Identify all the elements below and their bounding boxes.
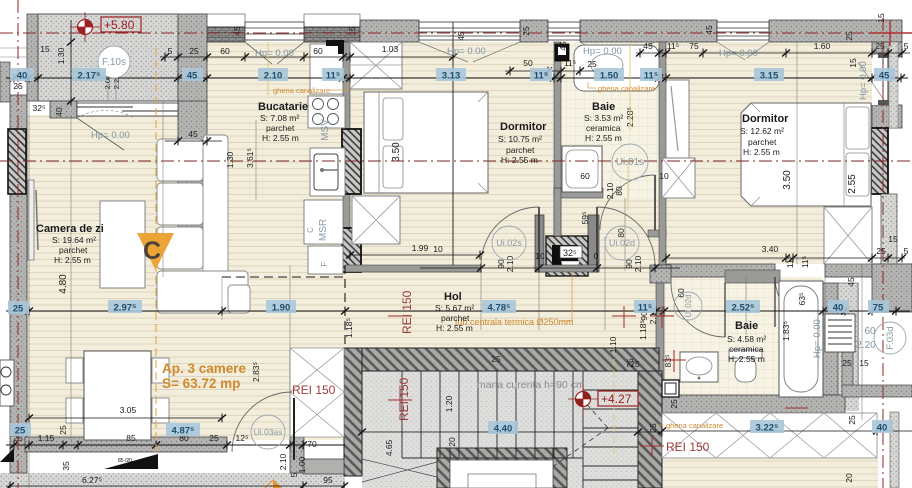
svg-text:2.52⁵: 2.52⁵: [732, 303, 755, 314]
svg-text:11⁵: 11⁵: [644, 71, 659, 82]
svg-text:32⁵: 32⁵: [33, 103, 46, 113]
svg-text:1.00: 1.00: [297, 456, 307, 473]
svg-text:45: 45: [643, 41, 653, 51]
svg-text:Baie: Baie: [735, 320, 758, 332]
svg-text:10: 10: [433, 244, 443, 254]
svg-text:1.83⁵: 1.83⁵: [781, 321, 791, 341]
svg-text:2.83⁵: 2.83⁵: [251, 362, 261, 382]
svg-text:S= 63.72 mp: S= 63.72 mp: [162, 376, 240, 391]
svg-text:25: 25: [13, 304, 24, 315]
svg-text:H: 2.55 m: H: 2.55 m: [743, 147, 780, 157]
svg-text:45: 45: [456, 31, 466, 41]
svg-text:1.18⁵: 1.18⁵: [638, 320, 648, 340]
svg-text:3.13: 3.13: [442, 71, 461, 82]
svg-text:3.61⁵: 3.61⁵: [245, 148, 255, 168]
svg-text:1.20: 1.20: [444, 395, 454, 412]
svg-text:11⁵: 11⁵: [326, 71, 341, 82]
svg-text:Ui.02d: Ui.02d: [684, 294, 693, 317]
svg-text:20: 20: [844, 473, 854, 483]
svg-text:Baie: Baie: [592, 101, 615, 113]
svg-text:5: 5: [904, 41, 909, 51]
svg-text:ceramica: ceramica: [586, 123, 621, 133]
svg-text:H: 2.55 m: H: 2.55 m: [262, 133, 299, 143]
svg-text:70: 70: [307, 439, 317, 449]
svg-text:75: 75: [689, 41, 699, 51]
svg-text:40: 40: [833, 303, 844, 314]
svg-text:15: 15: [347, 26, 357, 36]
svg-text:2.10: 2.10: [278, 453, 288, 470]
svg-text:25: 25: [15, 426, 26, 437]
svg-text:H: 2.55 m: H: 2.55 m: [501, 155, 538, 165]
svg-text:85 /20: 85 /20: [118, 458, 132, 464]
svg-text:2.10: 2.10: [633, 255, 643, 272]
svg-text:25: 25: [209, 433, 219, 443]
svg-text:45: 45: [187, 71, 198, 82]
svg-text:2.10: 2.10: [264, 71, 283, 82]
svg-text:MSR: MSR: [318, 219, 329, 241]
svg-text:1.50: 1.50: [600, 71, 619, 82]
svg-text:parchet: parchet: [441, 313, 470, 323]
svg-text:11⁵: 11⁵: [534, 71, 549, 82]
svg-text:75: 75: [873, 303, 884, 314]
svg-text:12⁵: 12⁵: [236, 433, 249, 443]
svg-text:+4.27: +4.27: [601, 392, 632, 406]
svg-text:32⁵: 32⁵: [563, 248, 577, 258]
svg-text:6.27⁵: 6.27⁵: [82, 475, 102, 485]
svg-text:mana curenta h=90 cm: mana curenta h=90 cm: [477, 379, 585, 391]
svg-text:3.15: 3.15: [760, 71, 779, 82]
svg-text:83⁵: 83⁵: [663, 355, 673, 368]
svg-text:4.78⁵: 4.78⁵: [488, 303, 511, 314]
svg-text:+5.80: +5.80: [104, 18, 135, 32]
svg-text:Hp= 0.00: Hp= 0.00: [583, 46, 622, 57]
svg-text:S: 4.58 m²: S: 4.58 m²: [727, 334, 766, 344]
svg-text:Hp= 0.00: Hp= 0.00: [91, 130, 130, 141]
svg-text:11⁵: 11⁵: [667, 41, 679, 51]
svg-text:15: 15: [876, 13, 886, 23]
svg-text:ceramica: ceramica: [729, 344, 764, 354]
svg-text:15: 15: [848, 58, 858, 68]
svg-text:REI 150: REI 150: [666, 440, 710, 454]
svg-text:3.05: 3.05: [120, 405, 137, 415]
svg-text:1.90: 1.90: [272, 303, 291, 314]
svg-text:45: 45: [846, 277, 856, 287]
svg-text:1.03: 1.03: [382, 44, 399, 54]
svg-text:S: 12.62 m²: S: 12.62 m²: [740, 126, 784, 136]
svg-text:Hp= 0.00: Hp= 0.00: [447, 46, 486, 57]
svg-text:F.10s: F.10s: [102, 57, 126, 68]
svg-text:1.60: 1.60: [814, 41, 831, 51]
svg-text:4.65: 4.65: [384, 439, 394, 456]
svg-text:Ui.03as: Ui.03as: [254, 427, 283, 437]
svg-text:Camera de zi: Camera de zi: [36, 223, 104, 235]
svg-text:Hp= 0.00: Hp= 0.00: [719, 48, 758, 59]
svg-text:F.03d: F.03d: [885, 326, 896, 349]
svg-text:25: 25: [847, 415, 857, 425]
svg-text:60: 60: [220, 46, 230, 56]
svg-text:25: 25: [648, 423, 658, 433]
svg-text:1.18⁵: 1.18⁵: [344, 318, 354, 338]
svg-text:45: 45: [558, 41, 568, 51]
svg-text:S: 5.67 m²: S: 5.67 m²: [435, 303, 474, 313]
svg-text:11⁵: 11⁵: [785, 256, 795, 268]
svg-text:3.40: 3.40: [762, 244, 779, 254]
svg-text:REI 150: REI 150: [397, 377, 411, 421]
svg-text:C: C: [306, 227, 315, 233]
svg-text:40: 40: [54, 107, 64, 117]
svg-text:parchet: parchet: [59, 245, 88, 255]
svg-text:1.30: 1.30: [225, 151, 235, 168]
svg-text:Bucatarie: Bucatarie: [258, 101, 308, 113]
svg-text:63⁵: 63⁵: [797, 293, 807, 306]
svg-text:25: 25: [844, 31, 854, 41]
svg-text:80: 80: [616, 228, 626, 238]
svg-text:H: 2.55 m: H: 2.55 m: [728, 354, 765, 364]
svg-text:10: 10: [535, 251, 545, 261]
svg-text:25: 25: [189, 46, 199, 56]
svg-text:Ui.02d: Ui.02d: [609, 238, 635, 248]
svg-text:REI 150: REI 150: [400, 290, 414, 334]
svg-text:F: F: [320, 261, 329, 266]
svg-text:1.10: 1.10: [608, 336, 618, 353]
svg-text:MSV: MSV: [320, 119, 331, 141]
svg-text:11⁵: 11⁵: [638, 303, 653, 314]
svg-text:11⁵: 11⁵: [564, 58, 576, 68]
svg-text:H: 2.55 m: H: 2.55 m: [54, 255, 91, 265]
svg-text:Hp= 0.00: Hp= 0.00: [812, 319, 823, 358]
svg-text:Ap. 3 camere: Ap. 3 camere: [162, 361, 247, 376]
svg-text:11⁵: 11⁵: [800, 256, 810, 268]
svg-text:25: 25: [521, 26, 531, 36]
svg-text:1.30: 1.30: [56, 47, 66, 64]
svg-text:60: 60: [580, 171, 590, 181]
svg-text:H: 2.55 m: H: 2.55 m: [585, 133, 622, 143]
svg-text:H: 2.55 m: H: 2.55 m: [436, 323, 473, 333]
svg-text:35: 35: [61, 461, 71, 471]
svg-text:parchet: parchet: [266, 123, 295, 133]
svg-text:15: 15: [859, 358, 869, 368]
svg-text:20: 20: [447, 437, 457, 447]
svg-text:2.17⁵: 2.17⁵: [78, 71, 101, 82]
svg-text:0: 0: [594, 251, 599, 261]
svg-text:S: 10.75 m²: S: 10.75 m²: [498, 134, 542, 144]
svg-text:60: 60: [313, 46, 323, 56]
svg-text:5: 5: [168, 46, 173, 56]
svg-text:Dormitor: Dormitor: [742, 113, 789, 125]
svg-text:Hp= 0.00: Hp= 0.00: [255, 48, 294, 59]
svg-text:5: 5: [904, 246, 909, 256]
svg-text:4.80: 4.80: [58, 274, 69, 294]
svg-text:25: 25: [875, 41, 885, 51]
svg-text:ghena canalizare: ghena canalizare: [666, 421, 723, 430]
svg-text:15: 15: [888, 234, 898, 244]
svg-text:25: 25: [630, 359, 640, 369]
svg-text:45: 45: [188, 129, 198, 139]
svg-text:C: C: [143, 237, 161, 265]
svg-text:10: 10: [659, 171, 669, 181]
svg-text:parchet: parchet: [748, 137, 777, 147]
svg-text:ghena canalizare: ghena canalizare: [598, 84, 655, 93]
svg-text:REI 150: REI 150: [292, 383, 336, 397]
svg-text:45: 45: [879, 71, 890, 82]
svg-text:S: 7.08 m²: S: 7.08 m²: [260, 113, 299, 123]
svg-text:1.99: 1.99: [412, 243, 429, 253]
svg-text:25: 25: [491, 354, 501, 364]
svg-text:40: 40: [877, 423, 888, 434]
svg-text:85: 85: [126, 433, 136, 443]
svg-text:2.97⁵: 2.97⁵: [114, 303, 137, 314]
svg-text:parchet: parchet: [506, 145, 535, 155]
svg-text:25: 25: [842, 358, 852, 368]
svg-text:2.55: 2.55: [847, 174, 858, 194]
svg-text:25: 25: [587, 59, 597, 69]
svg-text:3.50: 3.50: [391, 142, 402, 162]
svg-text:59⁵: 59⁵: [580, 212, 590, 225]
svg-text:Ui.02s: Ui.02s: [496, 238, 522, 248]
svg-text:40: 40: [17, 71, 28, 82]
svg-text:15: 15: [40, 44, 50, 54]
svg-text:1.15: 1.15: [38, 433, 55, 443]
svg-text:95: 95: [323, 475, 333, 485]
svg-text:2.20: 2.20: [856, 340, 876, 351]
svg-text:Ui.01s: Ui.01s: [616, 157, 644, 168]
svg-text:S: 19.64 m²: S: 19.64 m²: [52, 235, 96, 245]
svg-text:25: 25: [669, 399, 679, 409]
svg-text:50: 50: [523, 58, 533, 68]
svg-text:4.40: 4.40: [494, 424, 513, 435]
svg-text:25: 25: [58, 425, 68, 435]
svg-text:Dormitor: Dormitor: [500, 121, 547, 133]
svg-text:3.50: 3.50: [782, 170, 793, 190]
svg-text:S: 3.53 m²: S: 3.53 m²: [584, 113, 623, 123]
svg-text:2.10: 2.10: [505, 255, 515, 272]
svg-text:ghena canalizare: ghena canalizare: [273, 86, 330, 95]
svg-text:2.10: 2.10: [605, 182, 615, 199]
svg-text:45: 45: [232, 26, 242, 36]
svg-text:4.87⁵: 4.87⁵: [172, 426, 195, 437]
svg-text:80: 80: [614, 186, 624, 196]
svg-text:25: 25: [876, 246, 886, 256]
svg-text:Hol: Hol: [444, 291, 462, 303]
svg-text:3.22⁵: 3.22⁵: [756, 423, 779, 434]
svg-text:Hp= 0.00: Hp= 0.00: [858, 61, 869, 100]
